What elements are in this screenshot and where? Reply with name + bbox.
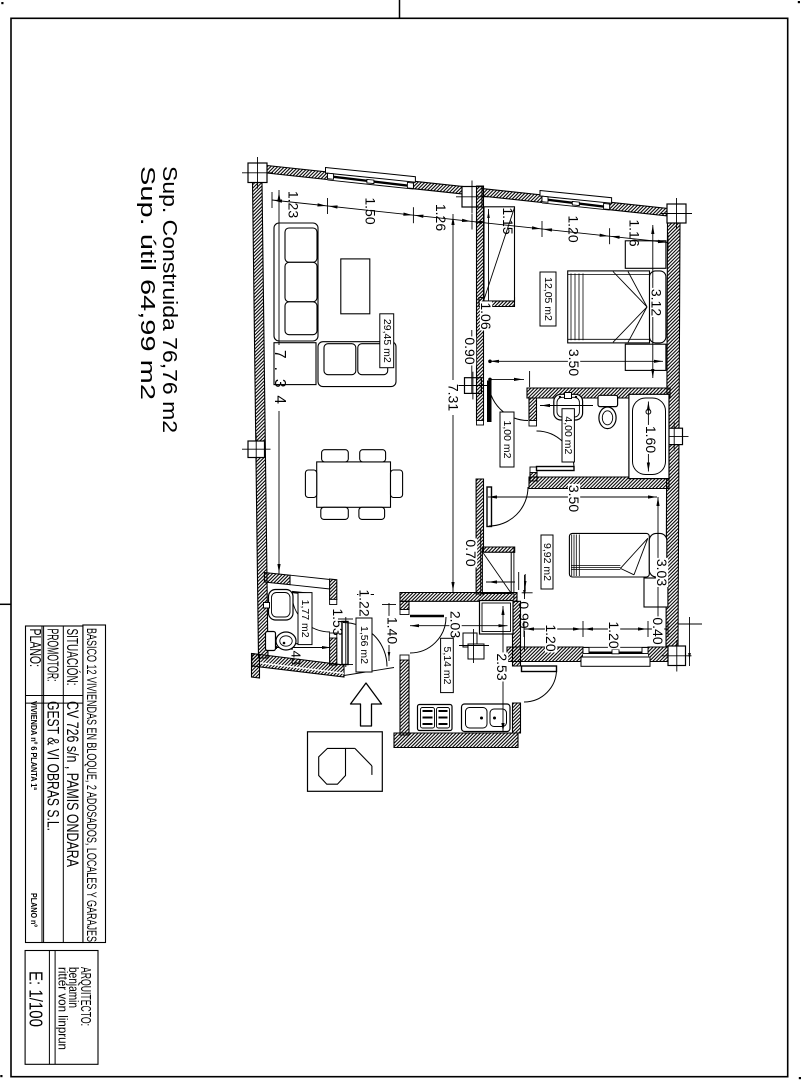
svg-text:PLANO:: PLANO:: [26, 629, 43, 668]
svg-text:1,77 m2: 1,77 m2: [299, 600, 311, 638]
svg-text:1.16: 1.16: [627, 219, 643, 246]
svg-text:2.03: 2.03: [448, 611, 464, 638]
svg-text:2.53: 2.53: [494, 653, 510, 680]
svg-text:ritter von linprun: ritter von linprun: [56, 967, 71, 1050]
svg-text:3.50: 3.50: [566, 485, 582, 512]
svg-text:12,05 m2: 12,05 m2: [542, 277, 554, 321]
svg-text:3.50: 3.50: [566, 349, 582, 376]
svg-text:1.15: 1.15: [500, 207, 516, 234]
svg-text:Sup. Construida 76,76 m2: Sup. Construida 76,76 m2: [158, 166, 180, 433]
svg-text:4,00 m2: 4,00 m2: [562, 416, 574, 454]
svg-text:7.31: 7.31: [446, 384, 462, 411]
svg-text:1.20: 1.20: [543, 624, 559, 651]
svg-text:BASICO 12 VIVIENDAS EN BLOQUE,: BASICO 12 VIVIENDAS EN BLOQUE, 2 ADOSADO…: [84, 628, 100, 942]
svg-text:0.99: 0.99: [516, 601, 532, 628]
svg-text:1.60: 1.60: [643, 426, 659, 453]
svg-text:3.12: 3.12: [649, 289, 665, 316]
svg-text:1.26: 1.26: [433, 204, 449, 231]
svg-text:1,00 m2: 1,00 m2: [501, 421, 513, 459]
svg-text:1.40: 1.40: [385, 617, 401, 644]
svg-text:PLANO nº: PLANO nº: [29, 893, 39, 927]
svg-text:1.20: 1.20: [606, 621, 622, 648]
svg-text:9,92 m2: 9,92 m2: [541, 543, 553, 581]
svg-text:CV 726 s/n , PAMIS ONDARA: CV 726 s/n , PAMIS ONDARA: [63, 701, 81, 867]
svg-text:1.20: 1.20: [566, 215, 582, 242]
svg-text:3.03: 3.03: [654, 559, 670, 586]
svg-text:1.23: 1.23: [286, 191, 302, 218]
svg-text:Sup. útil 64,99 m2: Sup. útil 64,99 m2: [136, 166, 158, 400]
svg-text:1.22: 1.22: [357, 589, 373, 616]
svg-text:0.40: 0.40: [650, 617, 666, 644]
svg-text:1,56 m2: 1,56 m2: [358, 626, 370, 664]
svg-text:GEST & VI OBRAS S.L.: GEST & VI OBRAS S.L.: [44, 701, 62, 831]
svg-text:SITUACIÓN:: SITUACIÓN:: [63, 629, 82, 686]
svg-text:1.06: 1.06: [478, 302, 494, 329]
svg-text:29,45 m2: 29,45 m2: [381, 319, 393, 363]
svg-text:PROMOTOR:: PROMOTOR:: [44, 629, 61, 682]
svg-text:VIVIENDA nº 6 PLANTA 1ª: VIVIENDA nº 6 PLANTA 1ª: [29, 701, 39, 791]
svg-text:1.53: 1.53: [330, 608, 346, 635]
svg-text:0.90: 0.90: [462, 337, 478, 364]
svg-text:E: 1/100: E: 1/100: [26, 971, 47, 1027]
svg-text:5,14 m2: 5,14 m2: [441, 647, 453, 685]
svg-text:0.70: 0.70: [463, 539, 479, 566]
svg-text:1.50: 1.50: [363, 197, 379, 224]
